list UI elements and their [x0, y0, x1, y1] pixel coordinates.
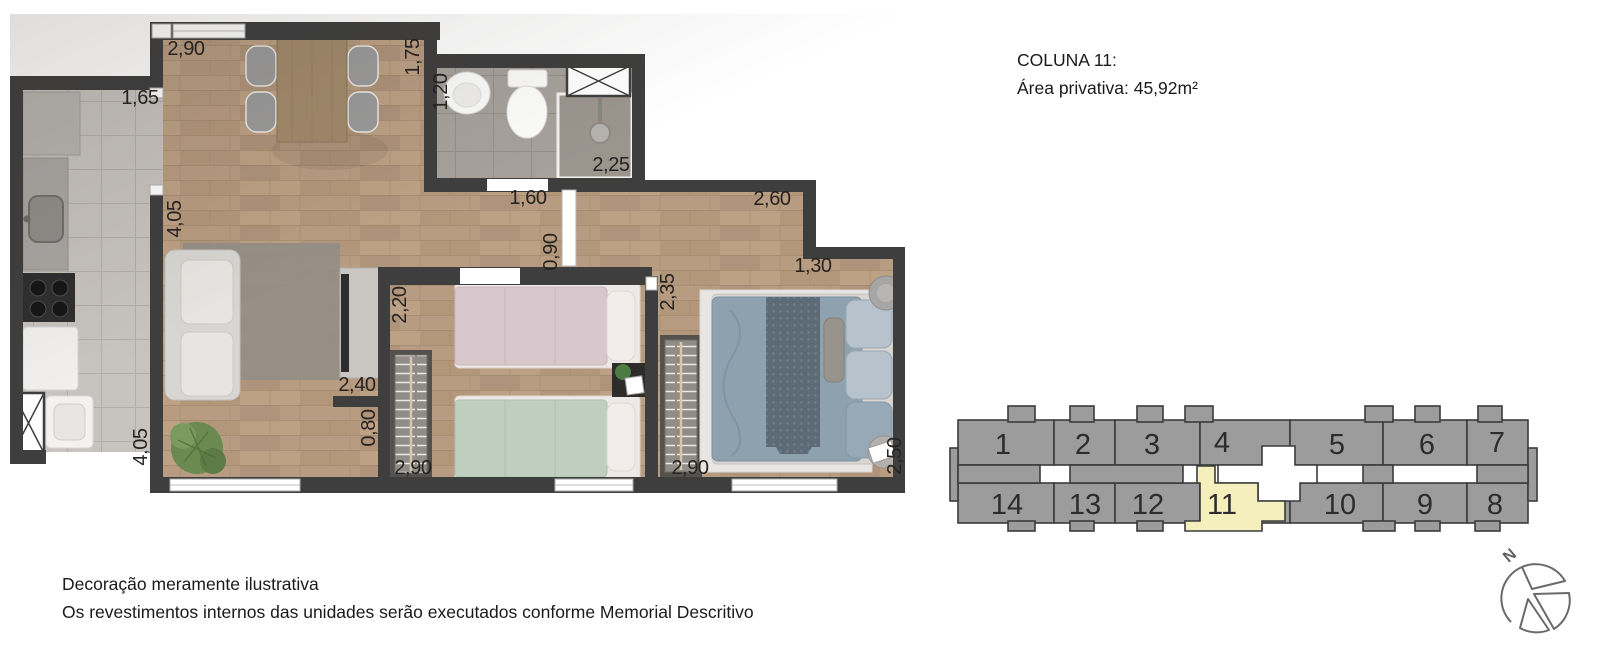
unit-label: 8	[1487, 489, 1503, 521]
balcony-bump	[1070, 406, 1094, 422]
disclaimer-line-2: Os revestimentos internos das unidades s…	[62, 598, 754, 626]
floor-plan: 2,90 1,75 1,65 1,20 2,25 1,60 2,60 4,05 …	[10, 14, 910, 496]
balcony-bump	[1137, 521, 1163, 531]
balcony-bump	[1365, 406, 1393, 422]
private-area-label: Área privativa: 45,92m²	[1017, 74, 1198, 102]
unit-label: 5	[1329, 429, 1345, 461]
unit-label: 13	[1069, 489, 1101, 521]
dimension-label: 2,25	[592, 154, 630, 176]
plan-footer: Decoração meramente ilustrativa Os reves…	[62, 570, 754, 626]
unit-label-highlighted: 11	[1207, 489, 1237, 521]
unit-label: 10	[1324, 489, 1356, 521]
unit-label: 14	[991, 489, 1023, 521]
balcony-bump	[1475, 521, 1500, 531]
balcony-bump	[1008, 521, 1035, 531]
disclaimer-line-1: Decoração meramente ilustrativa	[62, 570, 754, 598]
dimension-label: 2,60	[753, 188, 791, 210]
corridor-segment	[958, 465, 1040, 483]
balcony-bump	[1137, 406, 1163, 422]
column-title: COLUNA 11:	[1017, 46, 1198, 74]
unit-label: 2	[1075, 429, 1091, 461]
north-label: N	[1500, 546, 1520, 566]
dimension-label: 1,20	[430, 73, 452, 111]
key-plan: 1 2 3 4 5 6 7 14 13 12 11 10 9 8	[950, 406, 1537, 531]
dimension-label: 0,80	[358, 409, 380, 447]
dimension-label: 2,50	[884, 437, 906, 475]
unit-label: 12	[1132, 489, 1164, 521]
plan-header: COLUNA 11: Área privativa: 45,92m²	[1017, 46, 1198, 102]
corridor-segment	[1070, 465, 1183, 483]
unit-label: 3	[1144, 429, 1160, 461]
balcony-bump	[1363, 521, 1395, 531]
balcony-bump	[1415, 406, 1440, 422]
unit-label: 6	[1419, 429, 1435, 461]
dimension-label: 2,90	[671, 457, 709, 479]
corridor-segment	[1363, 465, 1393, 483]
edge-tab	[950, 448, 958, 501]
unit-label: 4	[1214, 427, 1230, 459]
unit-label: 1	[995, 429, 1011, 461]
balcony-bump	[1070, 521, 1094, 531]
floorplan-graphic: 2,90 1,75 1,65 1,20 2,25 1,60 2,60 4,05 …	[0, 0, 1600, 661]
dimension-label: 4,05	[130, 428, 152, 466]
north-compass: N	[1500, 546, 1570, 633]
dimension-label: 1,60	[509, 187, 547, 209]
dimension-label: 2,90	[167, 38, 205, 60]
balcony-bump	[1008, 406, 1035, 422]
balcony-bump	[1478, 406, 1502, 422]
dimension-label: 2,35	[657, 273, 679, 311]
edge-tab	[1528, 448, 1537, 501]
dimension-label: 4,05	[164, 200, 186, 238]
compass-arc	[1501, 567, 1522, 622]
dimension-label: 1,30	[794, 255, 832, 277]
balcony-bump	[1415, 521, 1440, 531]
dimension-label: 0,90	[540, 233, 562, 271]
unit-label: 7	[1489, 427, 1505, 459]
dimension-label: 1,65	[121, 87, 159, 109]
balcony-bump	[1185, 406, 1213, 422]
dimension-label: 1,75	[402, 38, 424, 76]
dimension-label: 2,90	[394, 457, 432, 479]
dimension-label: 2,40	[338, 374, 376, 396]
floorplan-page: 2,90 1,75 1,65 1,20 2,25 1,60 2,60 4,05 …	[0, 0, 1600, 661]
compass-arrow-top	[1522, 564, 1565, 589]
unit-label: 9	[1417, 489, 1433, 521]
corridor-segment	[1477, 465, 1528, 483]
dimension-label: 2,20	[389, 286, 411, 324]
